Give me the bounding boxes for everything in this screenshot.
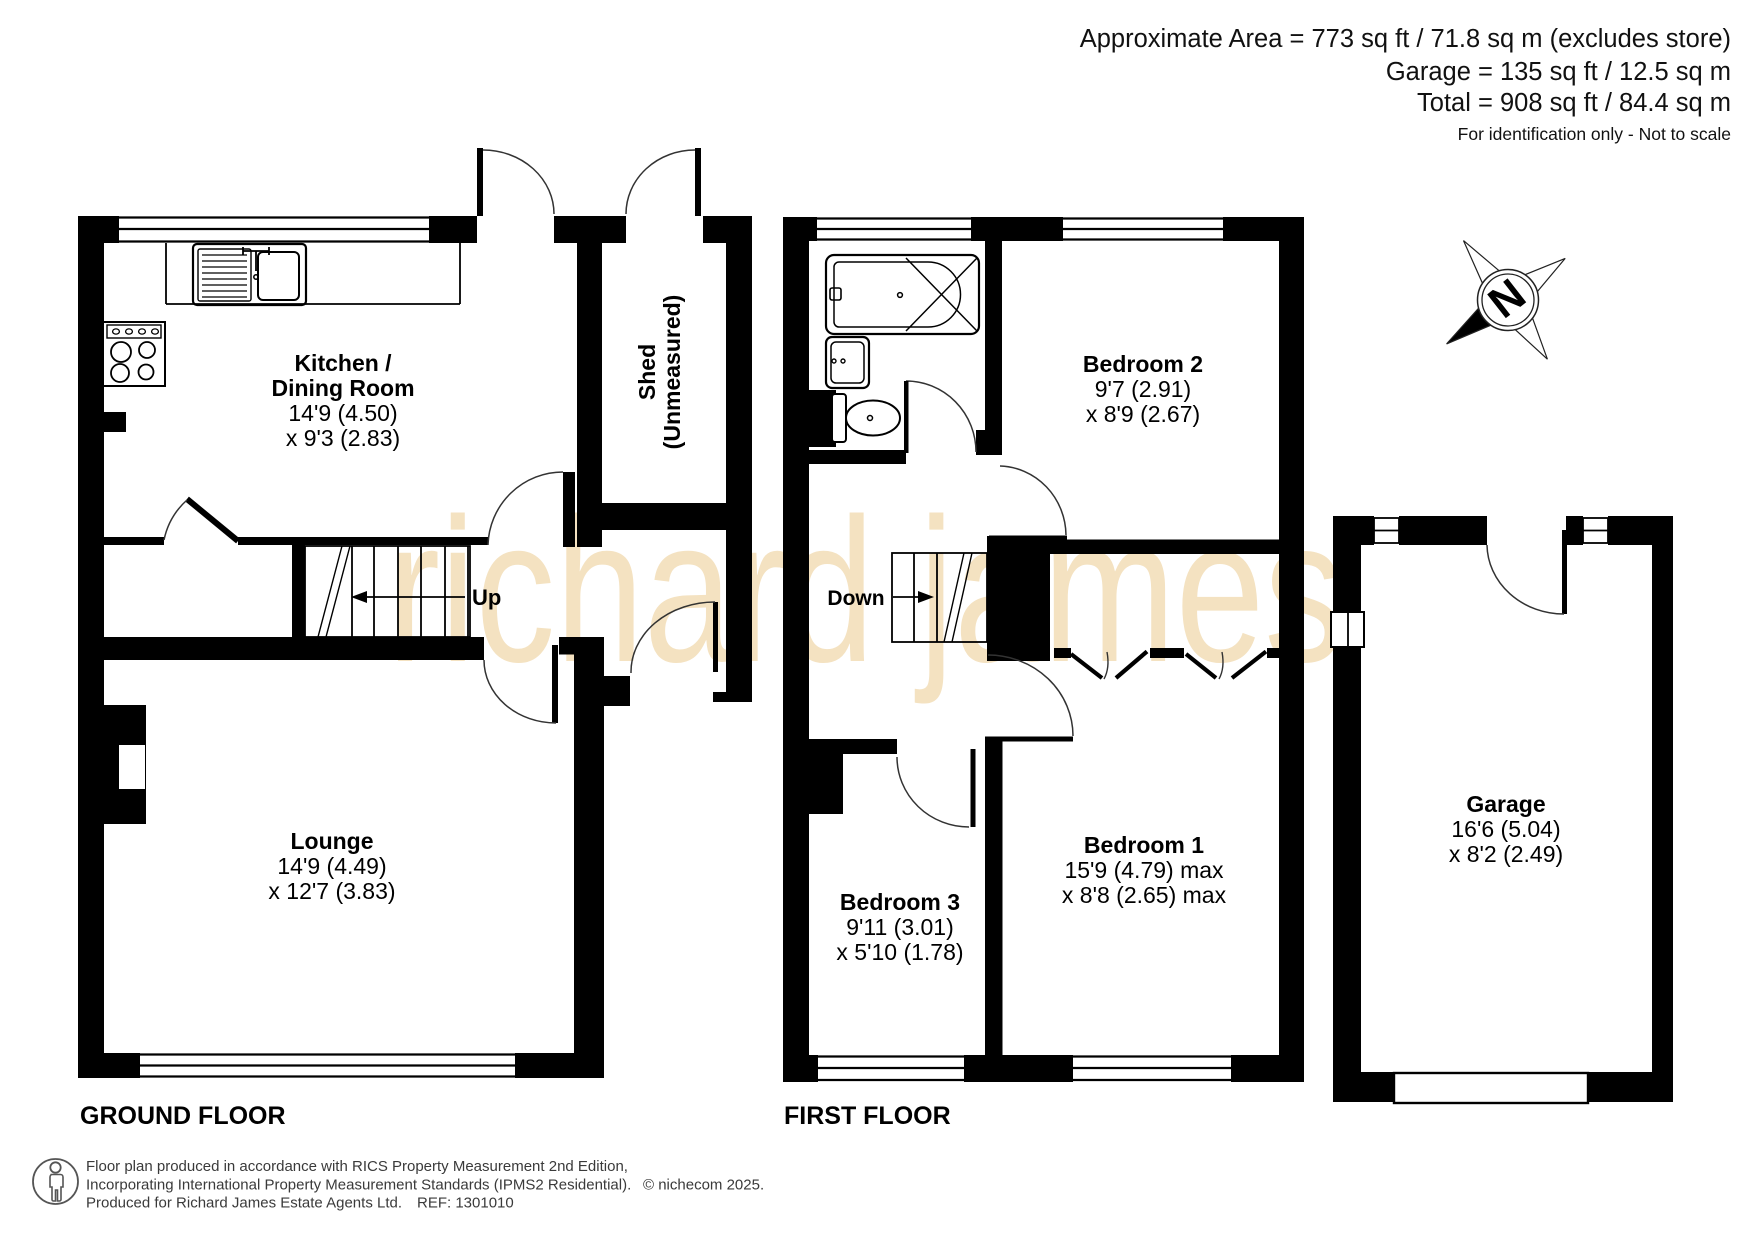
- svg-text:Approximate Area = 773 sq ft /: Approximate Area = 773 sq ft / 71.8 sq m…: [1080, 25, 1731, 53]
- svg-text:Shed: Shed: [634, 344, 660, 400]
- svg-text:Bedroom 3: Bedroom 3: [840, 889, 960, 915]
- svg-text:15'9 (4.79) max: 15'9 (4.79) max: [1064, 857, 1224, 883]
- svg-text:x 5'10 (1.78): x 5'10 (1.78): [836, 939, 963, 965]
- svg-text:Incorporating International Pr: Incorporating International Property Mea…: [86, 1177, 631, 1194]
- svg-text:FIRST FLOOR: FIRST FLOOR: [784, 1102, 951, 1130]
- svg-text:Bedroom 1: Bedroom 1: [1084, 832, 1204, 858]
- svg-text:Down: Down: [827, 587, 884, 610]
- svg-text:For identification only - Not: For identification only - Not to scale: [1458, 124, 1731, 144]
- svg-text:16'6 (5.04): 16'6 (5.04): [1451, 816, 1560, 842]
- svg-text:9'7 (2.91): 9'7 (2.91): [1095, 376, 1191, 402]
- svg-text:Produced for Richard James Est: Produced for Richard James Estate Agents…: [86, 1195, 402, 1212]
- svg-text:x 9'3 (2.83): x 9'3 (2.83): [286, 425, 400, 451]
- svg-text:Total = 908 sq ft / 84.4 sq m: Total = 908 sq ft / 84.4 sq m: [1417, 89, 1731, 117]
- svg-text:Dining Room: Dining Room: [271, 375, 414, 401]
- svg-text:GROUND FLOOR: GROUND FLOOR: [80, 1102, 286, 1130]
- svg-text:x 8'9 (2.67): x 8'9 (2.67): [1086, 401, 1200, 427]
- svg-text:© nichecom 2025.: © nichecom 2025.: [643, 1177, 764, 1194]
- svg-text:REF: 1301010: REF: 1301010: [417, 1195, 514, 1212]
- svg-text:Kitchen /: Kitchen /: [294, 350, 392, 376]
- svg-text:14'9 (4.49): 14'9 (4.49): [277, 853, 386, 879]
- svg-text:Lounge: Lounge: [290, 828, 373, 854]
- svg-text:x 8'2 (2.49): x 8'2 (2.49): [1449, 841, 1563, 867]
- svg-text:Floor plan produced in accorda: Floor plan produced in accordance with R…: [86, 1158, 628, 1175]
- svg-text:14'9 (4.50): 14'9 (4.50): [288, 400, 397, 426]
- svg-text:(Unmeasured): (Unmeasured): [659, 295, 685, 450]
- svg-text:Bedroom 2: Bedroom 2: [1083, 351, 1203, 377]
- svg-text:Up: Up: [472, 585, 501, 610]
- svg-text:x 8'8 (2.65) max: x 8'8 (2.65) max: [1062, 882, 1227, 908]
- svg-text:Garage: Garage: [1466, 791, 1545, 817]
- svg-text:x 12'7 (3.83): x 12'7 (3.83): [268, 878, 395, 904]
- svg-text:Garage = 135 sq ft / 12.5 sq m: Garage = 135 sq ft / 12.5 sq m: [1386, 58, 1731, 86]
- svg-text:9'11 (3.01): 9'11 (3.01): [846, 914, 954, 940]
